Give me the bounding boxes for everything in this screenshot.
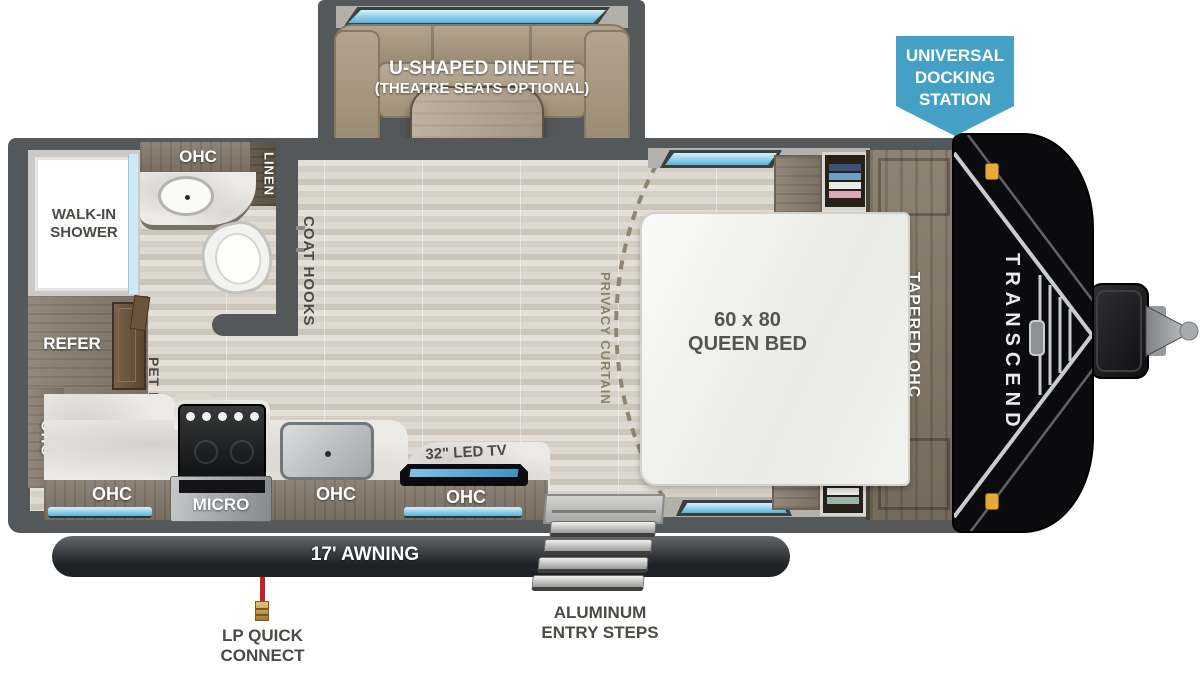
steps-label: ALUMINUM ENTRY STEPS [520,603,680,644]
bed-label-line1: 60 x 80 [650,308,845,332]
walk-in-shower: WALK-IN SHOWER [28,150,140,298]
entry-platform-edge [552,510,656,513]
dinette-label: U-SHAPED DINETTE (THEATRE SEATS OPTIONAL… [336,58,628,97]
kitchen-window-right [404,507,522,518]
toilet-bowl [210,229,266,289]
tv [400,464,528,486]
dinette-window-glass [348,10,606,23]
stove-oven-detail [194,440,218,464]
kitchen-window-left [48,507,152,518]
floorplan: U-SHAPED DINETTE (THEATRE SEATS OPTIONAL… [0,0,1200,681]
shower-glass [128,154,138,294]
lp-label-line2: CONNECT [190,646,335,666]
linen-label: LINEN [262,152,277,196]
privacy-curtain-label: PRIVACY CURTAIN [598,266,613,411]
awning-label: 17' AWNING [290,544,440,566]
bathroom-ohc-cabinet: OHC [140,142,256,172]
front-cap-graphics [954,135,1094,533]
entry-step-2 [543,539,652,555]
bathroom-wall [276,138,298,336]
stove-burner-5 [250,412,259,421]
ohc-bottom-center-label: OHC [278,484,394,505]
stove-oven-detail2 [230,440,254,464]
steps-label-line2: ENTRY STEPS [520,623,680,643]
lp-label: LP QUICK CONNECT [190,626,335,667]
bed-label-line2: QUEEN BED [650,332,845,356]
shower-label-line1: WALK-IN [52,206,116,224]
clothes-stack [829,191,861,198]
bathroom-sink-drain [185,195,190,200]
lp-fitting-ring [256,608,268,610]
dinette-label-line2: (THEATRE SEATS OPTIONAL) [336,80,628,97]
stove-burner-2 [202,412,211,421]
lp-fitting-ring2 [256,614,268,616]
docking-station-badge: UNIVERSAL DOCKING STATION [896,36,1014,136]
lp-label-line1: LP QUICK [190,626,335,646]
stove-burner-4 [234,412,243,421]
clothes-stack [829,164,861,171]
entry-platform [543,494,665,524]
marker-light-bottom [985,493,999,510]
coat-hooks-label: COAT HOOKS [300,196,317,346]
microwave: MICRO [170,476,272,522]
dinette-label-line1: U-SHAPED DINETTE [336,58,628,80]
entry-step-4 [531,575,644,591]
tv-screen [409,469,518,477]
shower-label: WALK-IN SHOWER [35,157,133,291]
stove-burner-1 [186,412,195,421]
refer-label: REFER [30,334,114,354]
lp-line [260,577,265,602]
bedroom-window-top-glass [665,153,777,165]
wardrobe-top [822,152,868,210]
steps-label-line1: ALUMINUM [520,603,680,623]
clothes-stack [827,497,859,504]
stove [178,404,266,486]
ohc-bottom-left-label: OHC [56,484,168,505]
bathroom-ohc-label: OHC [179,147,217,167]
badge-line3: STATION [896,89,1014,111]
clothes-stack [827,488,859,495]
clothes-stack [829,182,861,189]
badge-line2: DOCKING [896,67,1014,89]
bedroom-window-top [660,150,782,168]
nightstand-top [774,155,822,215]
kitchen-sink [280,422,374,480]
marker-light-top [985,163,999,180]
brand-label: TRANSCEND [1000,203,1023,483]
lp-fitting [255,601,269,621]
bathroom-wall-hook [212,314,298,336]
badge-line1: UNIVERSAL [896,45,1014,67]
hitch [1080,282,1200,380]
stove-burner-3 [218,412,227,421]
microwave-label: MICRO [171,495,271,515]
bed-label: 60 x 80 QUEEN BED [650,308,845,356]
entry-step-3 [537,557,648,573]
microwave-door [179,480,265,493]
clothes-stack [829,173,861,180]
front-cap: TRANSCEND [952,133,1094,533]
shower-label-line2: SHOWER [50,224,118,242]
ohc-under-tv-label: OHC [410,487,522,508]
entry-step-1 [549,521,656,537]
bathroom-sink [158,176,214,216]
headboard-upper-panel [878,158,950,216]
kitchen-sink-drain [325,451,331,457]
